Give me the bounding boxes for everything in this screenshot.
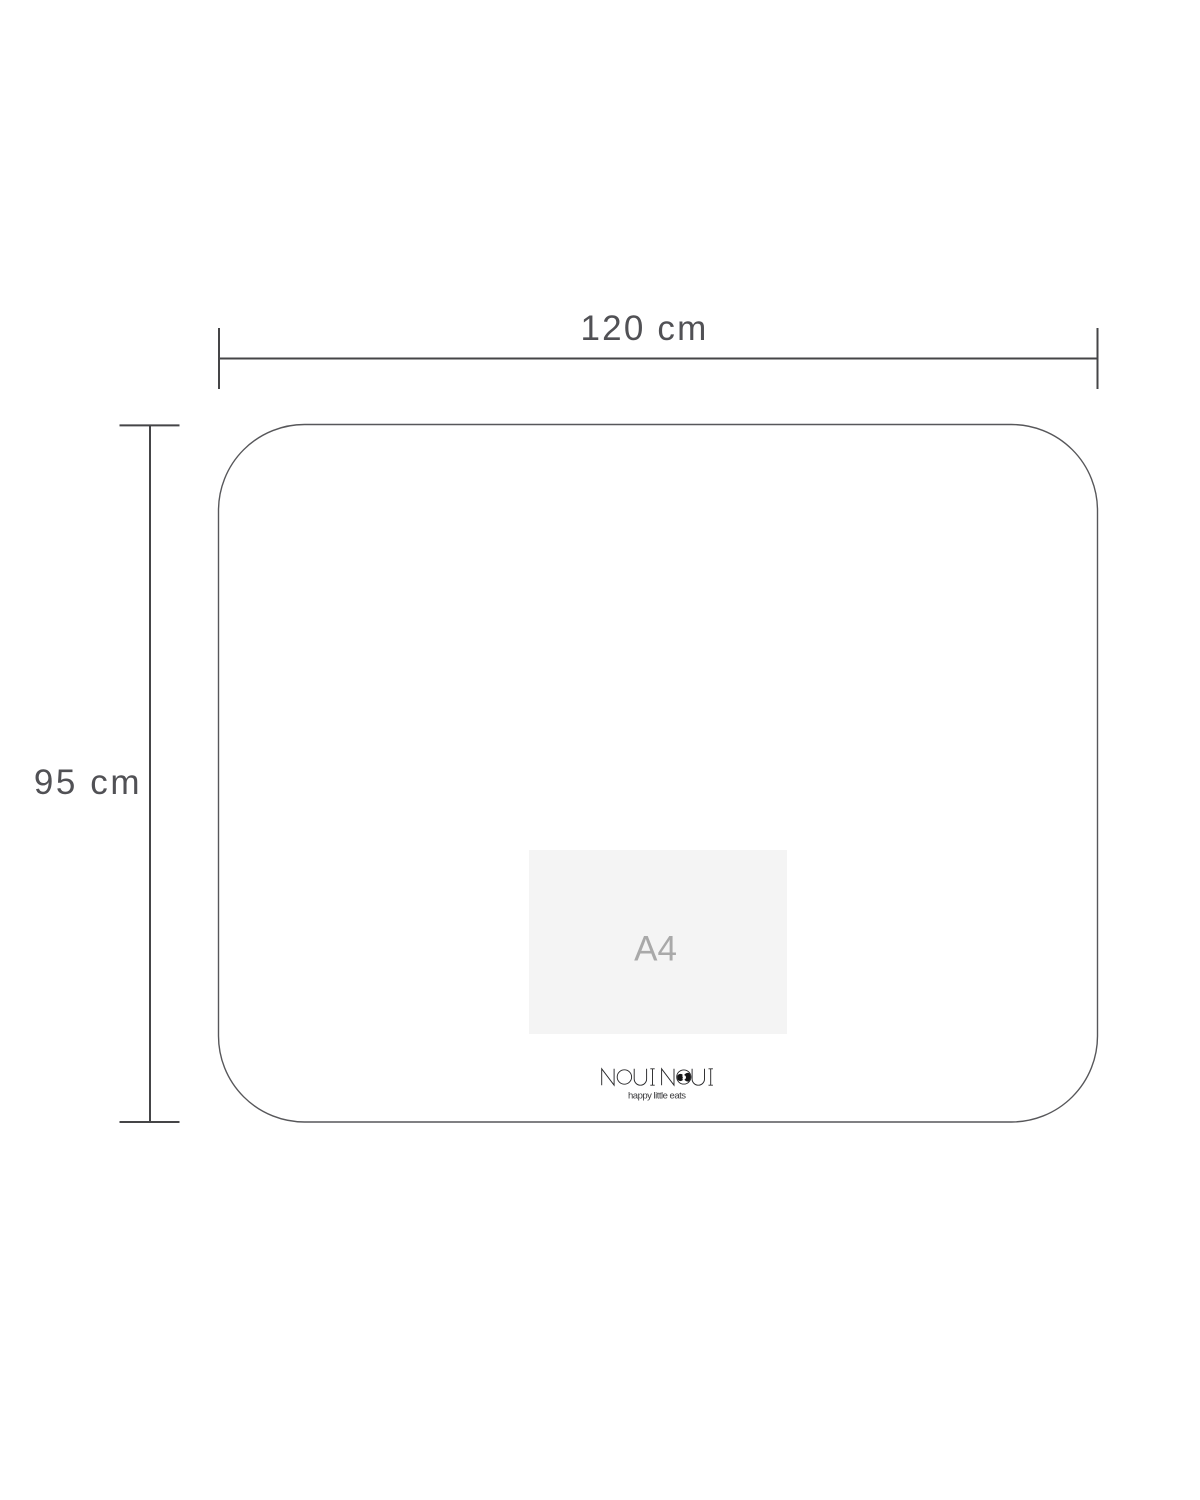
svg-text:120 cm: 120 cm — [581, 309, 709, 348]
svg-text:95 cm: 95 cm — [34, 763, 142, 802]
svg-text:A4: A4 — [634, 930, 677, 969]
svg-text:happy little eats: happy little eats — [628, 1091, 686, 1102]
